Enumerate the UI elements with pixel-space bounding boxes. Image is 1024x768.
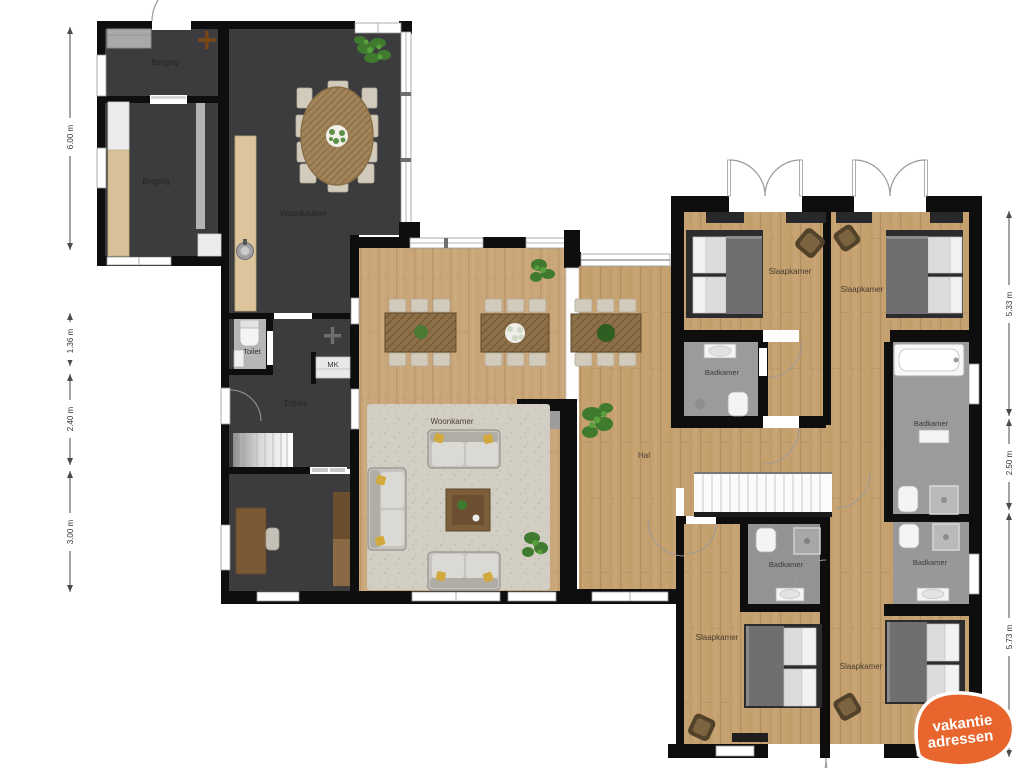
svg-text:Badkamer: Badkamer <box>913 558 948 567</box>
svg-text:Berging: Berging <box>151 58 179 67</box>
svg-text:6.00 m: 6.00 m <box>66 124 75 149</box>
svg-text:5.73 m: 5.73 m <box>1005 624 1014 649</box>
svg-text:MK: MK <box>327 360 338 369</box>
svg-text:Slaapkamer: Slaapkamer <box>769 267 812 276</box>
svg-text:Woonkeuken: Woonkeuken <box>280 209 327 218</box>
svg-text:Badkamer: Badkamer <box>914 419 949 428</box>
svg-text:Entree: Entree <box>284 399 308 408</box>
svg-text:1.36 m: 1.36 m <box>66 328 75 353</box>
svg-text:5.33 m: 5.33 m <box>1005 291 1014 316</box>
svg-text:Badkamer: Badkamer <box>769 560 804 569</box>
svg-text:Slaapkamer: Slaapkamer <box>696 633 739 642</box>
svg-text:Hal: Hal <box>638 451 650 460</box>
svg-text:2.40 m: 2.40 m <box>66 406 75 431</box>
svg-text:2.50 m: 2.50 m <box>1005 450 1014 475</box>
svg-text:Slaapkamer: Slaapkamer <box>841 285 884 294</box>
svg-text:Toilet: Toilet <box>243 347 261 356</box>
svg-text:Woonkamer: Woonkamer <box>431 417 474 426</box>
svg-text:Berging: Berging <box>142 177 170 186</box>
svg-text:Slaapkamer: Slaapkamer <box>840 662 883 671</box>
svg-text:3.00 m: 3.00 m <box>66 519 75 544</box>
svg-text:Badkamer: Badkamer <box>705 368 740 377</box>
